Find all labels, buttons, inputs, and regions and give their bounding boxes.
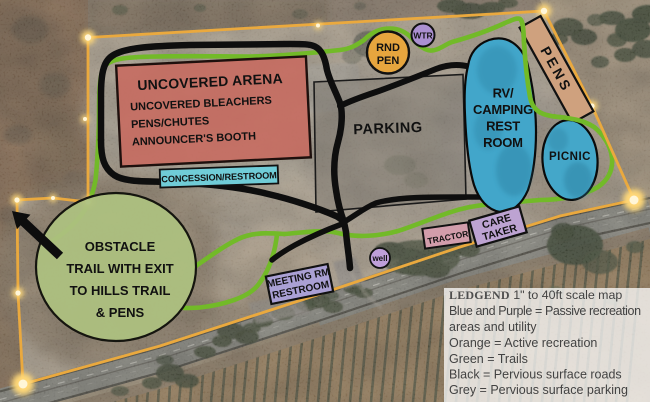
svg-text:PEN: PEN (377, 55, 400, 67)
svg-text:LEDGEND 1" to 40ft scale map: LEDGEND 1" to 40ft scale map (449, 288, 622, 302)
svg-text:PICNIC: PICNIC (549, 151, 591, 163)
svg-text:Orange = Active recreation: Orange = Active recreation (449, 336, 597, 350)
svg-text:Blue and Purple = Passive recr: Blue and Purple = Passive recreation (449, 304, 641, 318)
svg-text:areas and utility: areas and utility (449, 320, 537, 334)
svg-text:Green = Trails: Green = Trails (449, 352, 528, 366)
svg-text:TO HILLS TRAIL: TO HILLS TRAIL (70, 283, 171, 298)
svg-text:RV/: RV/ (493, 86, 514, 101)
svg-text:Black = Pervious surface roads: Black = Pervious surface roads (449, 368, 622, 382)
svg-text:& PENS: & PENS (96, 305, 145, 320)
svg-text:REST: REST (486, 119, 520, 134)
svg-text:RND: RND (376, 42, 400, 54)
svg-text:TRAIL WITH EXIT: TRAIL WITH EXIT (66, 261, 173, 276)
svg-text:well: well (371, 254, 387, 263)
svg-text:ROOM: ROOM (483, 135, 523, 150)
svg-text:CAMPING: CAMPING (473, 102, 533, 117)
svg-text:PARKING: PARKING (353, 120, 423, 138)
svg-text:Grey = Pervious surface parkin: Grey = Pervious surface parking (449, 383, 628, 397)
svg-text:OBSTACLE: OBSTACLE (85, 239, 156, 254)
svg-text:WTR: WTR (413, 31, 432, 41)
